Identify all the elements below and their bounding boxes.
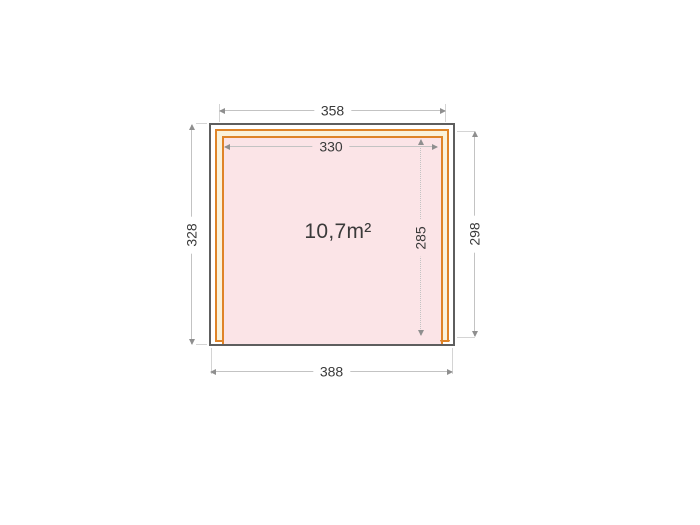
- dim-right-depth-label: 298: [467, 215, 482, 252]
- dim-arrowhead-down: [189, 339, 195, 345]
- dim-arrowhead-left: [219, 108, 225, 114]
- wall-end-cap-right: [440, 340, 450, 343]
- extension-line: [457, 337, 475, 338]
- dim-arrowhead-left: [224, 144, 230, 150]
- dim-inner-width: 330: [224, 140, 438, 153]
- wall-end-cap-left: [215, 340, 225, 343]
- dim-arrowhead-up: [418, 139, 424, 145]
- dim-inner-width-label: 330: [312, 139, 349, 154]
- dim-arrowhead-left: [210, 369, 216, 375]
- area-label: 10,7m²: [304, 220, 371, 244]
- dim-arrowhead-up: [472, 131, 478, 137]
- dim-arrowhead-up: [189, 124, 195, 130]
- dim-bottom-width-label: 388: [313, 364, 350, 379]
- dim-arrowhead-down: [418, 330, 424, 336]
- dim-top-width: 358: [219, 104, 446, 117]
- dim-arrowhead-right: [432, 144, 438, 150]
- floor-plan-canvas: 10,7m² 358 330 328 298 285: [0, 0, 700, 525]
- dim-arrowhead-down: [472, 331, 478, 337]
- dim-left-depth-label: 328: [184, 216, 199, 253]
- dim-arrowhead-right: [440, 108, 446, 114]
- dim-top-width-label: 358: [314, 103, 351, 118]
- dim-bottom-width: 388: [210, 365, 453, 378]
- dim-inner-depth: 285: [414, 139, 427, 336]
- dim-inner-depth-label: 285: [413, 219, 428, 256]
- dim-right-depth: 298: [468, 131, 481, 337]
- dim-arrowhead-right: [447, 369, 453, 375]
- dim-left-depth: 328: [185, 124, 198, 345]
